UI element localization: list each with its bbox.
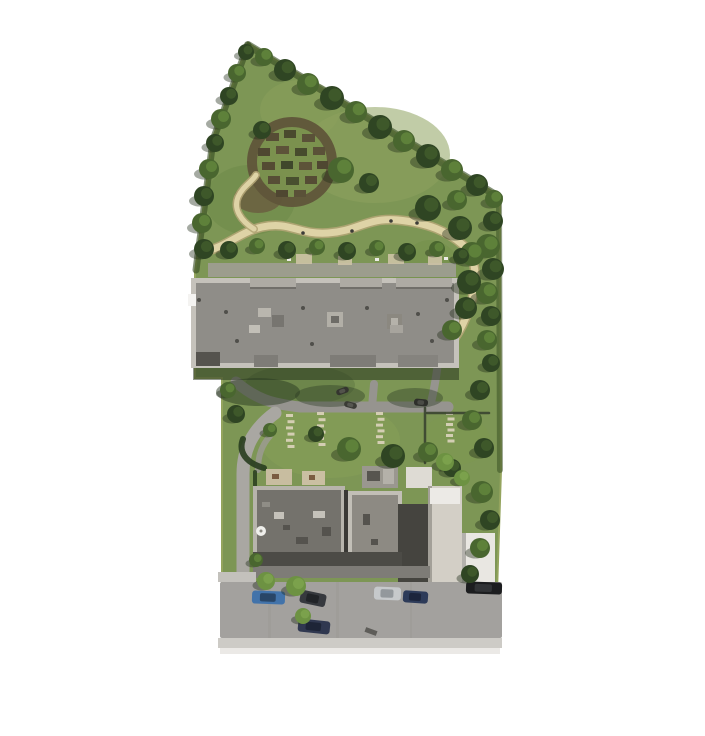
stepping-stones (319, 418, 326, 421)
walkway-spur-1 (372, 384, 374, 407)
stepping-stones (446, 434, 453, 437)
tree-highlight (477, 540, 488, 551)
garden-plot (302, 134, 315, 142)
building-b-facade-shadow (253, 552, 402, 566)
pedestrian (415, 221, 419, 225)
tree-highlight (226, 89, 236, 99)
garden-plot (295, 148, 307, 156)
hedge-shadow (387, 388, 443, 408)
tree-highlight (456, 218, 469, 231)
tree-highlight (344, 244, 354, 254)
street-car-blue (252, 590, 285, 604)
stepping-stones (448, 429, 455, 432)
tree-highlight (376, 117, 389, 130)
car-glass (409, 593, 422, 601)
rooftop-unit (363, 514, 370, 525)
rooftop-unit (390, 325, 403, 333)
tree-highlight (401, 132, 413, 144)
tree-highlight (404, 245, 414, 255)
building-b-penthouse (406, 467, 432, 488)
tree-highlight (484, 236, 497, 249)
tree-highlight (477, 382, 488, 393)
tree-highlight (454, 192, 465, 203)
tree-highlight (474, 176, 486, 188)
building-b-penthouse (383, 469, 394, 484)
tree-highlight (293, 578, 304, 589)
street-texture (410, 582, 412, 638)
tree-highlight (488, 356, 498, 366)
rooftop-vent (416, 312, 420, 316)
tree-highlight (315, 241, 324, 250)
garden-plot (258, 148, 270, 156)
stepping-stones (288, 433, 295, 436)
rooftop-vent (224, 310, 228, 314)
tree-highlight (261, 50, 271, 60)
rooftop-unit (262, 502, 270, 507)
terrace-furniture (444, 257, 448, 260)
rooftop-vent (310, 342, 314, 346)
tree-highlight (449, 322, 460, 333)
tree-highlight (481, 440, 492, 451)
garden-plot (305, 176, 317, 184)
stepping-stones (448, 418, 455, 421)
tree-highlight (353, 103, 365, 115)
tree-highlight (201, 188, 212, 199)
building-a-balcony-notch (188, 294, 196, 306)
building-b-penthouse (367, 471, 380, 481)
stepping-stones (319, 443, 326, 446)
stepping-stones (286, 414, 293, 417)
rooftop-vent (430, 339, 434, 343)
tree-highlight (254, 554, 262, 562)
tree-highlight (468, 244, 481, 257)
building-a-terrace-notch (250, 278, 296, 287)
tree-highlight (259, 123, 269, 133)
tree-highlight (328, 88, 341, 101)
boundary-hedge-right (499, 200, 500, 470)
street-texture (336, 582, 339, 638)
street-texture (268, 582, 271, 638)
garden-plot (313, 147, 325, 155)
car-glass (475, 584, 493, 592)
tree-highlight (459, 250, 468, 259)
stepping-stones (288, 420, 295, 423)
tree-highlight (460, 472, 469, 481)
pedestrian (389, 219, 393, 223)
patio-furniture (272, 474, 279, 479)
garden-plot (268, 176, 280, 184)
tree-highlight (479, 483, 491, 495)
tree-highlight (435, 243, 444, 252)
tree-highlight (424, 198, 438, 212)
stepping-stones (378, 429, 385, 432)
garden-plot (276, 190, 288, 197)
tree-highlight (425, 444, 436, 455)
tree-highlight (366, 175, 377, 186)
car-glass (305, 621, 321, 631)
stepping-stones (286, 439, 293, 442)
tree-highlight (218, 111, 229, 122)
pedestrian (350, 229, 354, 233)
building-b-roof-gap (344, 490, 348, 554)
car-glass (380, 589, 393, 598)
garden-plot (317, 161, 328, 169)
building-a-terrace-notch (196, 352, 220, 366)
building-b-roof-right-top (430, 488, 460, 504)
rooftop-unit (258, 308, 271, 317)
building-a-terrace-notch (254, 355, 278, 367)
tree-highlight (206, 161, 217, 172)
tree-highlight (449, 161, 461, 173)
rooftop-unit (274, 512, 284, 519)
tree-highlight (234, 66, 244, 76)
aerial-site-plan (0, 0, 705, 736)
street-car-silver (374, 587, 401, 601)
tree-highlight (226, 243, 236, 253)
tree-highlight (442, 455, 452, 465)
building-a-terrace-notch (396, 278, 452, 287)
garden-plot (262, 162, 275, 170)
tree-highlight (424, 146, 437, 159)
sidewalk-upper (218, 572, 256, 582)
rooftop-unit (322, 527, 331, 536)
terrace-patio (296, 254, 312, 264)
rooftop-vent (365, 306, 369, 310)
building-a-terrace-notch (340, 278, 382, 287)
site-plan-svg (0, 0, 705, 736)
stepping-stones (376, 435, 383, 438)
rooftop-unit (296, 537, 308, 544)
garden-plot (284, 130, 296, 138)
rooftop-vent (235, 339, 239, 343)
tree-highlight (490, 260, 502, 272)
building-b-lower-roof (253, 566, 430, 578)
building-a-terrace-notch (330, 355, 376, 367)
tree-highlight (244, 46, 253, 55)
rooftop-unit (283, 525, 290, 530)
rooftop-unit (272, 315, 284, 327)
parked-car-path (414, 398, 429, 406)
tree-highlight (263, 574, 273, 584)
tree-highlight (301, 610, 310, 619)
curb-shadow (220, 648, 500, 654)
building-a-terrace-notch (396, 287, 452, 289)
tree-highlight (337, 160, 351, 174)
garden-plot (281, 161, 293, 169)
terrace-furniture (375, 258, 379, 261)
tree-highlight (467, 567, 477, 577)
stepping-stones (446, 423, 453, 426)
tree-highlight (212, 136, 222, 146)
building-a-terrace-notch (340, 287, 382, 289)
rooftop-vent (301, 306, 305, 310)
tree-highlight (491, 192, 501, 202)
rooftop-unit (313, 511, 325, 518)
stepping-stones (286, 426, 293, 429)
stepping-stones (378, 441, 385, 444)
stepping-stones (376, 424, 383, 427)
tree-highlight (282, 61, 294, 73)
tree-highlight (199, 215, 210, 226)
tree-highlight (226, 384, 235, 393)
rooftop-unit (331, 316, 339, 323)
rooftop-vent (445, 298, 449, 302)
pedestrian (301, 231, 305, 235)
terrace-band (208, 263, 456, 277)
car-glass (260, 593, 276, 602)
stepping-stones (448, 440, 455, 443)
garden-plot (299, 162, 312, 170)
stepping-stones (376, 412, 383, 415)
terrace-patio (428, 256, 442, 265)
tree-highlight (375, 242, 384, 251)
street-car-black (466, 581, 502, 594)
tree-highlight (345, 439, 358, 452)
car-glass (417, 400, 424, 405)
stepping-stones (317, 412, 324, 415)
garden-plot (294, 190, 306, 197)
stepping-stones (288, 445, 295, 448)
tree-highlight (305, 75, 317, 87)
tree-highlight (488, 308, 499, 319)
tree-highlight (233, 407, 243, 417)
tree-highlight (268, 424, 276, 432)
street-car-navy (403, 590, 429, 604)
building-a-terrace-notch (398, 355, 438, 367)
tree-highlight (255, 240, 264, 249)
garden-plot (276, 146, 289, 154)
building-a-roof (196, 283, 454, 363)
rooftop-vent (197, 298, 201, 302)
tree-highlight (201, 241, 212, 252)
tree-highlight (487, 512, 498, 523)
tree-highlight (484, 284, 496, 296)
sidewalk-lower (218, 638, 502, 648)
tree-highlight (484, 332, 495, 343)
satellite-dish-center (260, 530, 263, 533)
building-a-terrace-notch (250, 287, 296, 289)
tree-highlight (465, 272, 478, 285)
rooftop-unit (371, 539, 378, 545)
tree-highlight (314, 428, 323, 437)
tree-highlight (463, 299, 475, 311)
garden-plot (286, 177, 299, 185)
rooftop-unit (249, 325, 260, 333)
tree-highlight (490, 213, 501, 224)
tree-highlight (389, 446, 402, 459)
patio-furniture (309, 475, 315, 480)
rooftop-unit (391, 318, 398, 325)
tree-highlight (284, 243, 294, 253)
stepping-stones (378, 418, 385, 421)
tree-highlight (469, 412, 480, 423)
